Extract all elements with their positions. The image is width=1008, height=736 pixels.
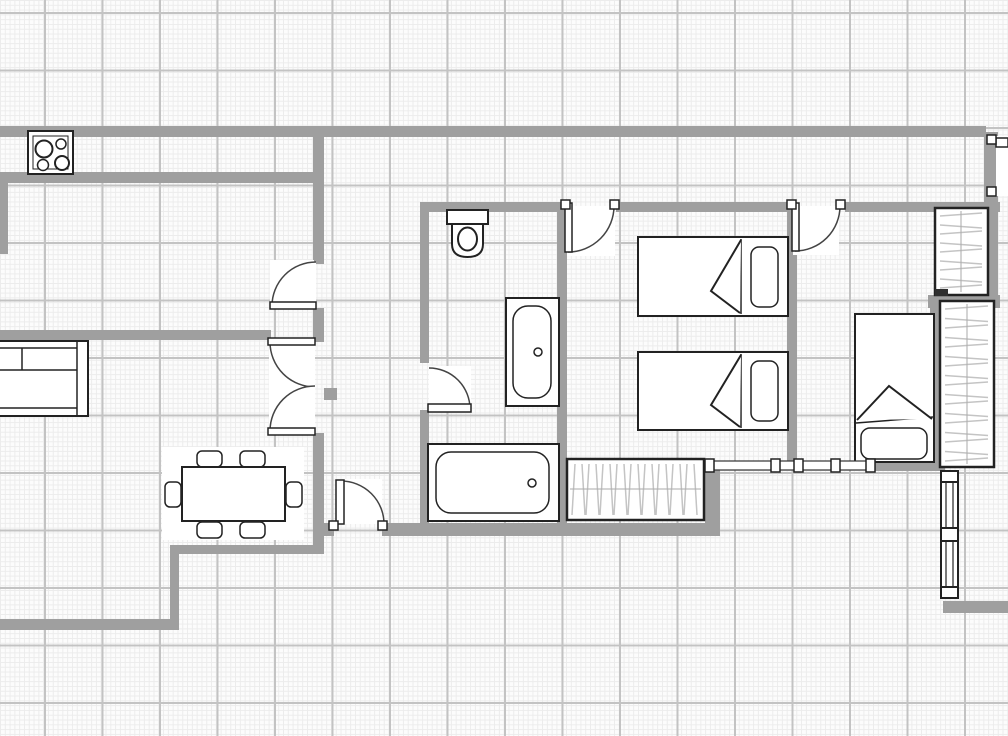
sofa[interactable] (0, 341, 88, 416)
wardrobe-right-upper[interactable] (935, 208, 988, 296)
wall[interactable] (324, 388, 337, 400)
door-bathroom[interactable] (428, 366, 471, 412)
wall[interactable] (0, 619, 179, 630)
wall[interactable] (313, 126, 324, 264)
wall[interactable] (420, 202, 429, 363)
bed-twin-1[interactable] (638, 237, 788, 316)
wall[interactable] (0, 182, 8, 254)
bathtub-horizontal[interactable] (428, 444, 559, 521)
bed-single[interactable] (855, 314, 934, 462)
wall[interactable] (170, 545, 320, 554)
window-south[interactable] (705, 459, 875, 472)
wall[interactable] (420, 202, 566, 212)
door-bedroom-2[interactable] (787, 200, 845, 255)
wall[interactable] (943, 601, 1008, 613)
wardrobe-hall[interactable] (567, 459, 704, 520)
wall[interactable] (170, 545, 179, 630)
floorplan-svg (0, 0, 1008, 736)
wardrobe-right-lower[interactable] (940, 301, 994, 467)
door-bedroom-1[interactable] (561, 200, 619, 256)
stove[interactable] (28, 131, 73, 174)
door-pantry[interactable] (270, 260, 316, 309)
bed-twin-2[interactable] (638, 352, 788, 430)
wall[interactable] (616, 202, 791, 212)
bathtub-vertical[interactable] (506, 298, 559, 406)
dining-table-set[interactable] (162, 447, 304, 540)
window-east[interactable] (941, 471, 958, 598)
wall[interactable] (382, 523, 718, 536)
wall[interactable] (0, 126, 986, 137)
door-hall-south[interactable] (329, 479, 387, 530)
wall[interactable] (0, 330, 271, 340)
wall[interactable] (313, 308, 324, 342)
door-living-double[interactable] (268, 338, 315, 435)
floorplan-canvas (0, 0, 1008, 736)
toilet[interactable] (447, 210, 488, 257)
